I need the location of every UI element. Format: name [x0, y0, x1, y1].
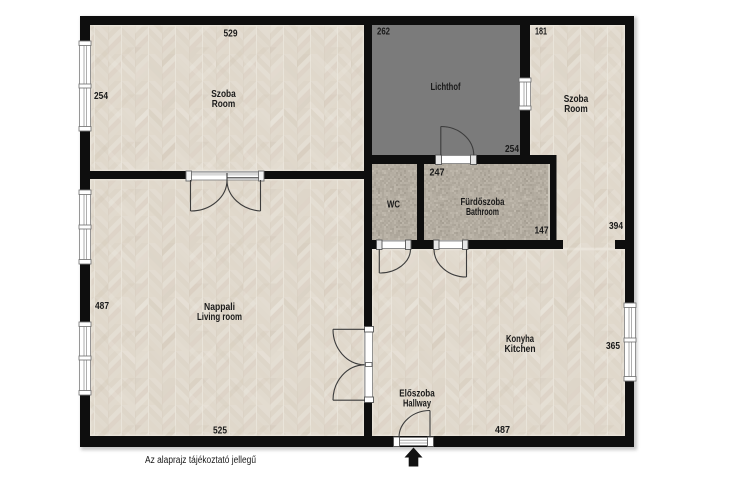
svg-text:525: 525 [213, 426, 227, 437]
svg-text:487: 487 [495, 425, 510, 436]
svg-text:FürdőszobaBathroom: FürdőszobaBathroom [461, 197, 505, 218]
svg-text:365: 365 [606, 341, 620, 352]
svg-text:SzobaRoom: SzobaRoom [564, 94, 589, 115]
svg-text:147: 147 [535, 226, 549, 237]
svg-text:529: 529 [224, 29, 238, 40]
svg-text:Az alaprajz tájékoztató jelleg: Az alaprajz tájékoztató jellegű [145, 455, 256, 466]
svg-text:254: 254 [94, 91, 108, 102]
svg-text:181: 181 [535, 27, 547, 38]
svg-text:ElőszobaHallway: ElőszobaHallway [399, 389, 435, 410]
svg-text:KonyhaKitchen: KonyhaKitchen [505, 334, 536, 355]
svg-text:487: 487 [95, 301, 109, 312]
svg-text:394: 394 [609, 221, 623, 232]
svg-text:Lichthof: Lichthof [431, 82, 462, 93]
svg-text:262: 262 [377, 27, 390, 38]
svg-text:247: 247 [430, 168, 445, 179]
svg-text:WC: WC [387, 200, 400, 211]
svg-text:SzobaRoom: SzobaRoom [211, 89, 236, 110]
svg-text:254: 254 [505, 144, 519, 155]
